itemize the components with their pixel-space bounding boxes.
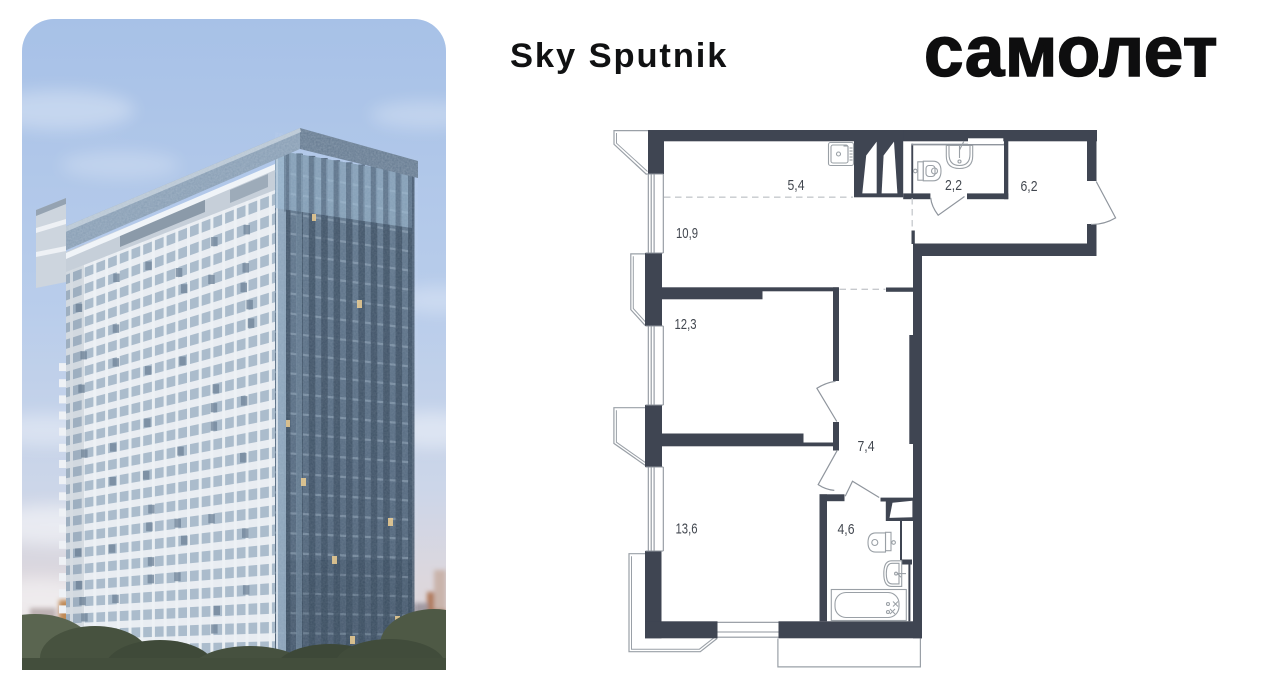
svg-text:13,6: 13,6 — [676, 521, 698, 538]
svg-text:6,2: 6,2 — [1021, 178, 1038, 195]
svg-text:4,6: 4,6 — [838, 521, 855, 538]
svg-text:12,3: 12,3 — [675, 316, 697, 333]
svg-text:5,4: 5,4 — [788, 177, 805, 194]
svg-text:2,2: 2,2 — [945, 177, 962, 194]
svg-text:10,9: 10,9 — [676, 225, 698, 242]
svg-text:7,4: 7,4 — [858, 438, 875, 455]
